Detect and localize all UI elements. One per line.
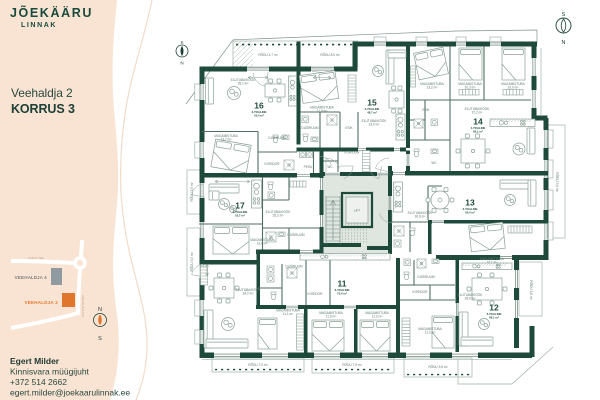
svg-text:11,8 m²: 11,8 m²: [317, 109, 328, 113]
svg-text:55,7 m²: 55,7 m²: [235, 214, 245, 218]
svg-text:ESIK: ESIK: [345, 126, 353, 130]
svg-text:KAEVU TEE: KAEVU TEE: [28, 256, 44, 260]
svg-text:14: 14: [473, 117, 483, 127]
svg-text:DUŠIRUUM: DUŠIRUUM: [285, 264, 303, 269]
svg-text:RÕDU 7,5 m²: RÕDU 7,5 m²: [248, 362, 267, 367]
svg-text:55,4 m²: 55,4 m²: [254, 114, 264, 118]
svg-text:11,2 m²: 11,2 m²: [425, 331, 436, 335]
svg-text:ESIK: ESIK: [422, 108, 430, 112]
svg-text:70,4 m²: 70,4 m²: [337, 292, 347, 296]
svg-text:17: 17: [235, 201, 245, 211]
svg-text:S: S: [180, 40, 183, 45]
svg-text:WC: WC: [431, 161, 437, 165]
svg-text:S: S: [98, 336, 102, 342]
svg-text:28,0 m²: 28,0 m²: [465, 297, 476, 301]
svg-text:34,2 m²: 34,2 m²: [243, 292, 254, 296]
svg-text:85,1 m²: 85,1 m²: [473, 130, 483, 134]
svg-text:KORIDOR: KORIDOR: [413, 290, 429, 294]
svg-text:PESU: PESU: [304, 165, 313, 169]
svg-text:LINNAK: LINNAK: [21, 22, 57, 29]
svg-text:25,2 m²: 25,2 m²: [273, 214, 284, 218]
svg-text:RÕDU 5,5 m²: RÕDU 5,5 m²: [189, 252, 194, 271]
svg-text:RÕDU 9,6 m²: RÕDU 9,6 m²: [428, 364, 447, 369]
svg-text:RÕDU 5,5 m²: RÕDU 5,5 m²: [189, 182, 194, 201]
svg-text:JÕEKÄÄRU: JÕEKÄÄRU: [10, 5, 93, 20]
svg-text:N: N: [180, 61, 183, 66]
svg-text:13: 13: [465, 198, 475, 208]
svg-text:RÕDU 8,5 m²: RÕDU 8,5 m²: [320, 52, 339, 57]
svg-text:N: N: [562, 40, 566, 46]
svg-text:KORRUS 3: KORRUS 3: [11, 102, 75, 116]
svg-text:RÕDU 4,7 m²: RÕDU 4,7 m²: [258, 52, 277, 57]
svg-text:37,2 m²: 37,2 m²: [472, 111, 483, 115]
svg-text:LIFT: LIFT: [354, 209, 360, 213]
svg-text:30,6 m²: 30,6 m²: [415, 215, 426, 219]
svg-text:Kinnisvara müügijuht: Kinnisvara müügijuht: [10, 367, 90, 377]
svg-text:VEEHALDJA 4: VEEHALDJA 4: [15, 275, 48, 280]
svg-text:RÕDU 7,5 m²: RÕDU 7,5 m²: [342, 362, 361, 367]
svg-text:RÕDU 5,6 m²: RÕDU 5,6 m²: [555, 172, 560, 191]
svg-text:Veehaldja 2: Veehaldja 2: [11, 86, 73, 100]
svg-text:48,7 m²: 48,7 m²: [367, 111, 377, 115]
svg-text:VEEHALDJA TEE: VEEHALDJA TEE: [81, 295, 85, 317]
svg-text:15: 15: [367, 98, 377, 108]
svg-text:11,9 m²: 11,9 m²: [326, 315, 337, 319]
svg-text:DUŠIRUUM: DUŠIRUUM: [287, 232, 305, 237]
svg-text:DUŠIRUUM: DUŠIRUUM: [301, 125, 319, 130]
svg-text:11,1 m²: 11,1 m²: [283, 312, 294, 316]
svg-text:VEEHALDJA 2: VEEHALDJA 2: [25, 300, 59, 305]
svg-text:RÕDU 5,6 m²: RÕDU 5,6 m²: [529, 280, 534, 299]
svg-text:23,0 m²: 23,0 m²: [369, 123, 380, 127]
svg-text:11: 11: [338, 279, 347, 289]
svg-text:11,2 m²: 11,2 m²: [372, 315, 383, 319]
svg-text:16: 16: [254, 101, 264, 111]
svg-text:35,1 m²: 35,1 m²: [238, 82, 249, 86]
svg-text:10,3 m²: 10,3 m²: [465, 86, 476, 90]
svg-text:KORIDOR: KORIDOR: [265, 162, 281, 166]
svg-text:13,7 m²: 13,7 m²: [221, 138, 232, 142]
svg-text:13,1 m²: 13,1 m²: [257, 242, 268, 246]
svg-text:KORIDOR: KORIDOR: [345, 151, 361, 155]
svg-text:10,0 m²: 10,0 m²: [508, 86, 519, 90]
svg-text:65,4 m²: 65,4 m²: [465, 211, 475, 215]
svg-text:+372 514 2662: +372 514 2662: [10, 377, 67, 387]
svg-text:13,2 m²: 13,2 m²: [427, 86, 438, 90]
svg-text:66,1 m²: 66,1 m²: [489, 316, 499, 320]
svg-text:12: 12: [489, 303, 499, 313]
svg-text:WC: WC: [327, 165, 333, 169]
svg-text:S: S: [562, 12, 566, 18]
svg-text:Egert Milder: Egert Milder: [10, 356, 60, 366]
svg-text:DUŠIRUUM: DUŠIRUUM: [268, 135, 286, 140]
svg-text:KORIDOR: KORIDOR: [308, 292, 324, 296]
svg-text:DUŠIRUUM: DUŠIRUUM: [417, 274, 435, 279]
svg-text:N: N: [98, 307, 102, 313]
svg-text:egert.milder@joekaarulinnak.ee: egert.milder@joekaarulinnak.ee: [10, 388, 130, 398]
